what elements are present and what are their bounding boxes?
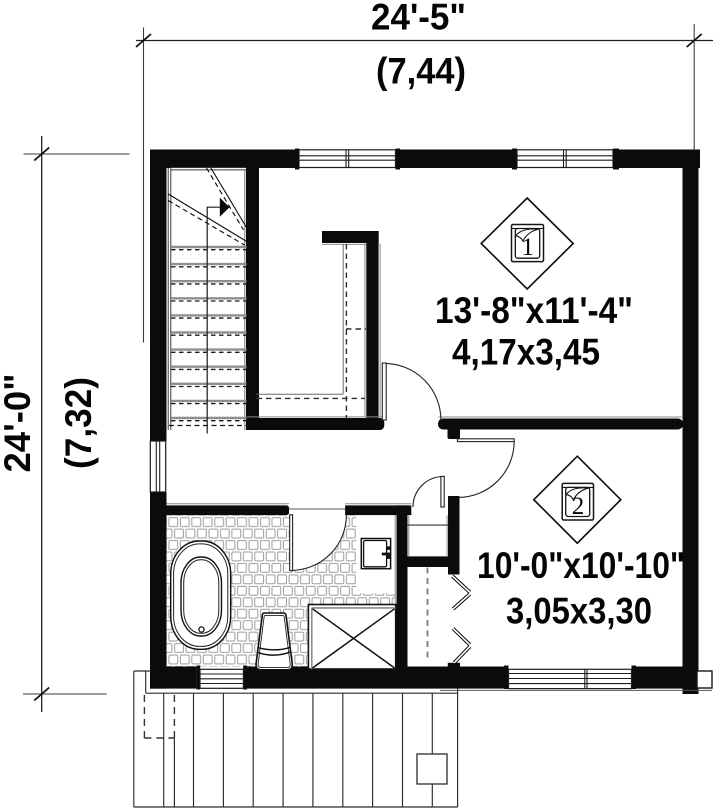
svg-text:10'-0"x10'-10": 10'-0"x10'-10" <box>477 545 685 586</box>
svg-text:4,17x3,45: 4,17x3,45 <box>452 332 600 373</box>
svg-text:24'-5": 24'-5" <box>371 0 466 38</box>
svg-text:24'-0": 24'-0" <box>0 374 38 473</box>
svg-text:(7,32): (7,32) <box>58 377 99 469</box>
svg-text:3,05x3,30: 3,05x3,30 <box>506 591 652 632</box>
svg-text:(7,44): (7,44) <box>376 51 466 92</box>
svg-text:1: 1 <box>521 234 534 261</box>
svg-text:2: 2 <box>572 493 585 520</box>
svg-text:13'-8"x11'-4": 13'-8"x11'-4" <box>435 290 633 331</box>
